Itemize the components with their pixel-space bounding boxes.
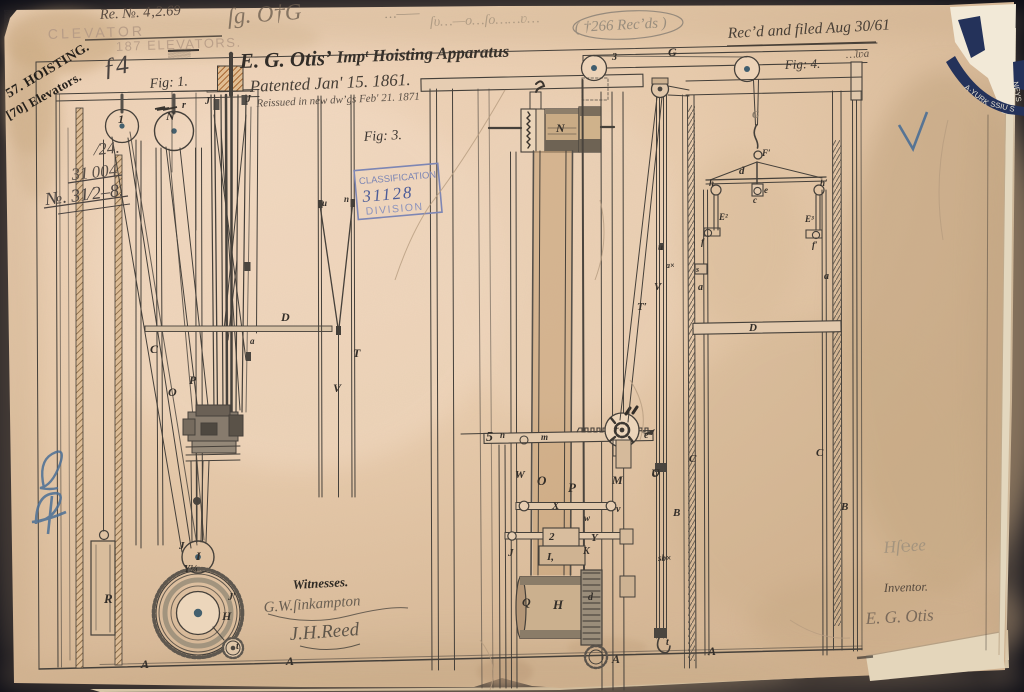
svg-text:n: n <box>344 194 349 204</box>
svg-text:M: M <box>611 473 623 487</box>
svg-text:c: c <box>753 195 757 205</box>
svg-text:W: W <box>515 469 526 481</box>
svg-text:J′: J′ <box>227 592 236 603</box>
svg-text:V: V <box>333 381 342 395</box>
svg-text:e: e <box>644 430 649 441</box>
svg-text:a: a <box>250 336 255 346</box>
svg-text:s: s <box>695 265 699 274</box>
svg-text:Witnesses.: Witnesses. <box>292 574 348 592</box>
svg-text:n: n <box>500 430 505 440</box>
svg-text:w: w <box>584 513 591 523</box>
svg-text:O: O <box>537 473 547 488</box>
svg-text:ƒ4: ƒ4 <box>101 50 131 82</box>
svg-text:N: N <box>165 109 176 123</box>
svg-text:h: h <box>709 178 714 188</box>
svg-text:…——: …—— <box>385 5 421 21</box>
svg-text:H: H <box>552 597 564 612</box>
svg-text:T: T <box>353 346 361 360</box>
svg-text:E. G. Otis: E. G. Otis <box>864 605 934 628</box>
svg-text:Y¼: Y¼ <box>184 564 198 575</box>
svg-text:…ʅʋa: …ʅʋa <box>846 48 871 61</box>
svg-text:d: d <box>739 165 745 177</box>
svg-text:O: O <box>652 467 660 479</box>
svg-text:J: J <box>204 96 211 107</box>
svg-text:Inventor.: Inventor. <box>883 579 929 595</box>
svg-text:E³: E³ <box>804 214 814 224</box>
svg-text:G: G <box>752 110 760 121</box>
svg-text:C: C <box>816 447 824 459</box>
svg-text:E. G. Otis’: E. G. Otis’ <box>238 46 332 73</box>
svg-text:v: v <box>616 504 621 515</box>
svg-text:P: P <box>189 373 197 387</box>
svg-text:⁄24.: ⁄24. <box>91 138 120 160</box>
svg-text:5: 5 <box>486 430 493 445</box>
svg-text:T′: T′ <box>637 301 647 313</box>
svg-text:Fig: 3.: Fig: 3. <box>362 128 402 145</box>
svg-text:a×: a× <box>666 261 675 270</box>
svg-text:A: A <box>285 654 294 668</box>
svg-text:u: u <box>322 198 327 208</box>
svg-text:3: 3 <box>611 52 617 63</box>
svg-text:I,: I, <box>546 551 554 563</box>
svg-text:N: N <box>555 121 566 135</box>
svg-text:D: D <box>280 310 290 324</box>
svg-text:r: r <box>615 424 619 434</box>
svg-text:G: G <box>668 45 677 59</box>
svg-text:B: B <box>672 507 680 519</box>
svg-text:Fig: 4.: Fig: 4. <box>784 56 821 72</box>
svg-text:A: A <box>140 657 149 671</box>
svg-text:a: a <box>698 282 703 293</box>
svg-text:O: O <box>168 385 177 399</box>
svg-text:F′: F′ <box>761 148 771 158</box>
svg-text:P: P <box>568 480 577 495</box>
svg-text:Hſ℮ee: Hſ℮ee <box>882 535 927 557</box>
svg-text:e: e <box>764 185 768 195</box>
svg-text:E²: E² <box>718 212 728 222</box>
svg-text:K: K <box>582 546 591 557</box>
svg-text:sb×: sb× <box>657 553 671 563</box>
svg-text:J: J <box>178 540 185 552</box>
svg-text:C: C <box>689 453 697 465</box>
svg-text:f′: f′ <box>812 240 818 250</box>
svg-text:a: a <box>824 271 829 282</box>
svg-text:J: J <box>507 547 514 559</box>
svg-text:h′: h′ <box>820 178 828 188</box>
svg-text:m: m <box>541 432 548 442</box>
svg-text:Fig: 1.: Fig: 1. <box>148 74 188 92</box>
svg-text:1: 1 <box>118 112 124 126</box>
svg-text:2: 2 <box>548 531 555 543</box>
svg-text:X: X <box>551 500 560 512</box>
svg-text:A: A <box>707 644 716 658</box>
svg-text:B: B <box>840 501 848 513</box>
svg-text:C: C <box>150 342 159 356</box>
svg-text:A: A <box>611 652 620 666</box>
svg-text:u: u <box>658 242 663 252</box>
svg-text:J: J <box>245 94 252 105</box>
svg-text:D: D <box>748 322 757 334</box>
svg-text:R: R <box>103 591 113 606</box>
svg-text:r: r <box>182 100 186 111</box>
svg-text:Q: Q <box>522 595 531 609</box>
svg-text:H: H <box>221 609 232 623</box>
